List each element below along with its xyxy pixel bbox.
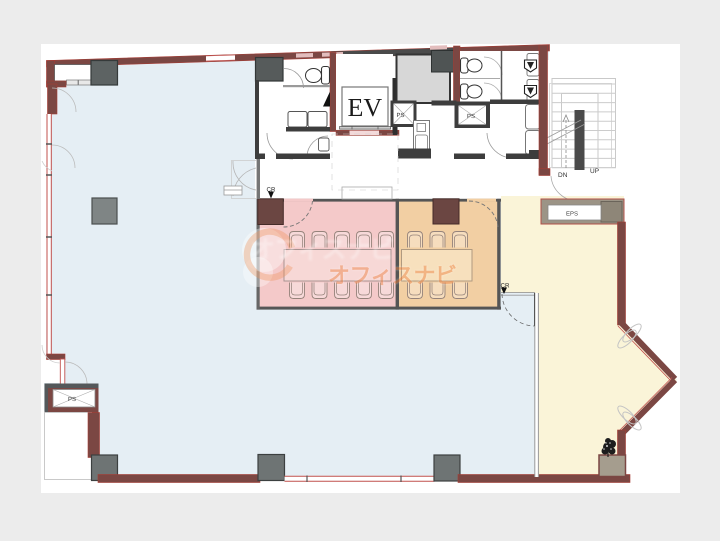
svg-text:EPS: EPS [566,211,578,218]
svg-text:オフィスナビ: オフィスナビ [250,236,394,264]
svg-text:PS: PS [68,396,76,403]
svg-text:オフィスナビ: オフィスナビ [328,263,457,288]
svg-text:UP: UP [590,168,599,175]
svg-text:EV: EV [348,93,383,122]
svg-text:DN: DN [558,172,568,179]
svg-text:PS: PS [397,112,405,119]
svg-text:PS: PS [467,113,475,120]
